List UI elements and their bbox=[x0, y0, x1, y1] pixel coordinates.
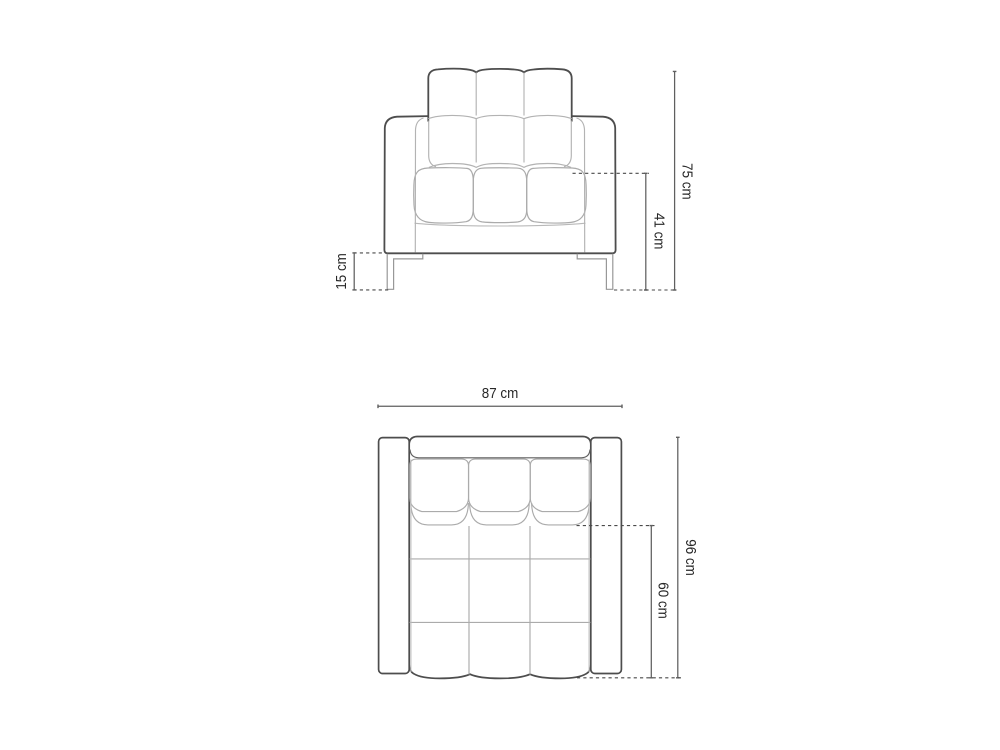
svg-text:87 cm: 87 cm bbox=[482, 386, 519, 402]
svg-text:96 cm: 96 cm bbox=[682, 539, 698, 576]
svg-text:75 cm: 75 cm bbox=[679, 163, 695, 200]
svg-text:15 cm: 15 cm bbox=[334, 253, 350, 290]
svg-text:60 cm: 60 cm bbox=[655, 582, 671, 619]
svg-text:41 cm: 41 cm bbox=[651, 213, 667, 250]
